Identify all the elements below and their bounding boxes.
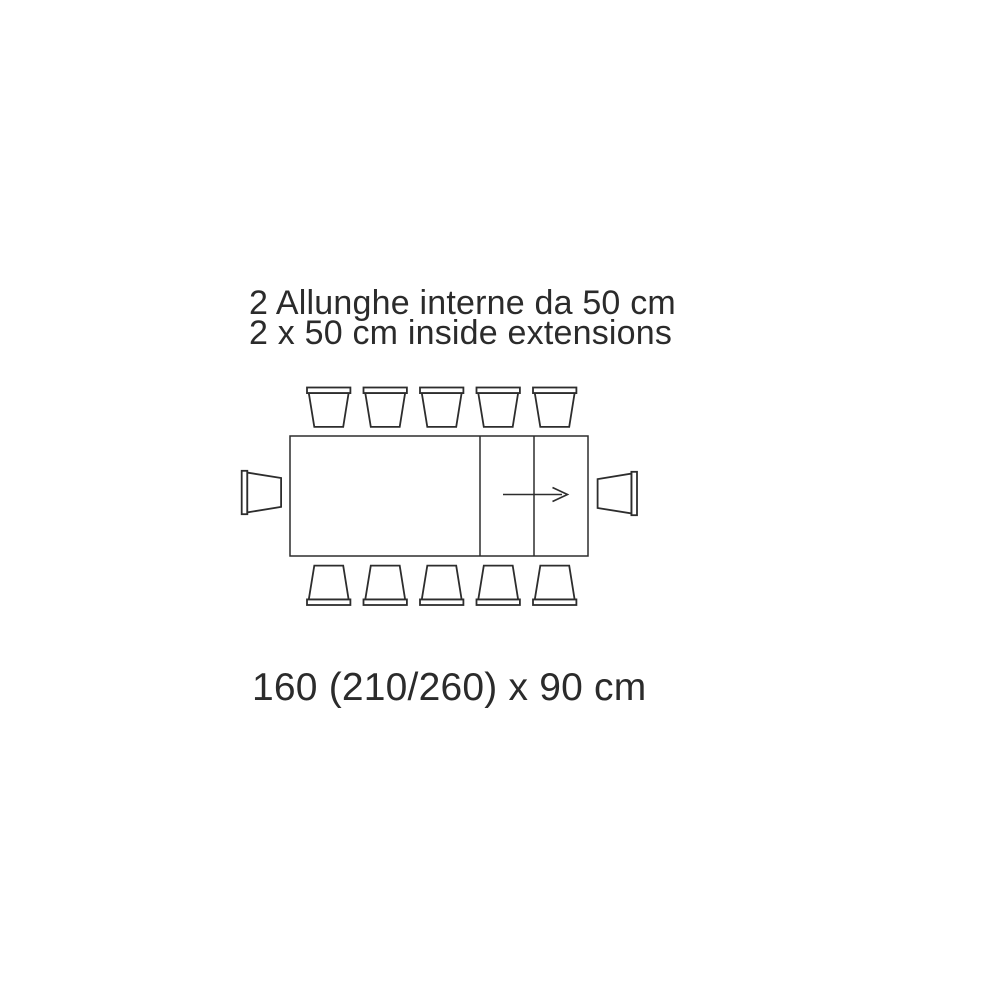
chair-bottom-1 <box>307 566 350 605</box>
chair-top-5 <box>533 388 576 427</box>
table-outline <box>290 436 588 556</box>
chair-top-2 <box>364 388 407 427</box>
extension-arrow <box>503 488 568 502</box>
chair-bottom-2 <box>364 566 407 605</box>
dimensions-label: 160 (210/260) x 90 cm <box>252 670 646 706</box>
chair-top-1 <box>307 388 350 427</box>
chair-bottom-5 <box>533 566 576 605</box>
chairs-group <box>242 388 637 606</box>
diagram-page: 2 Allunghe interne da 50 cm 2 x 50 cm in… <box>0 0 1000 1000</box>
chair-top-4 <box>477 388 520 427</box>
chair-top-3 <box>420 388 463 427</box>
chair-left <box>242 471 281 514</box>
chair-bottom-3 <box>420 566 463 605</box>
chair-right <box>598 472 637 515</box>
chair-bottom-4 <box>477 566 520 605</box>
table-plan-diagram <box>0 0 1000 1000</box>
table-group <box>290 436 588 556</box>
